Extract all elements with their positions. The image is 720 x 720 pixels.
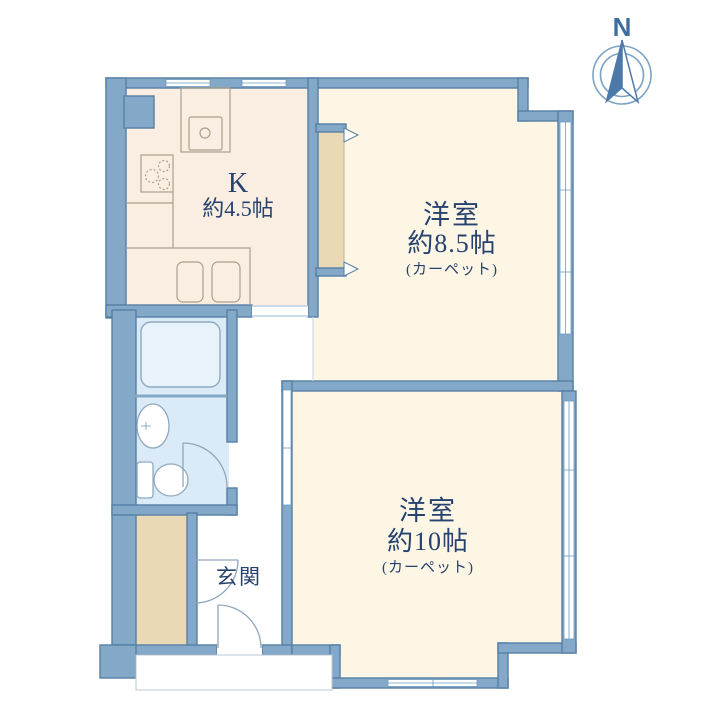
wall-bath-right-upper bbox=[227, 310, 237, 442]
wall-closet-right bbox=[187, 513, 197, 655]
wall-bottom-genkan-right bbox=[262, 645, 292, 655]
entrance-porch bbox=[136, 655, 332, 690]
kitchen-opening bbox=[252, 305, 308, 317]
compass-north-label: N bbox=[613, 12, 632, 42]
wall-closet1-stub-top bbox=[316, 124, 346, 132]
room1-note: (カーペット) bbox=[406, 262, 498, 278]
kitchen-size: 約4.5帖 bbox=[202, 196, 274, 221]
floorplan-canvas: N K 約4.5帖 洋室 約8.5帖 (カーペット) 洋室 約10帖 (カーペッ… bbox=[0, 0, 720, 720]
room1-size: 約8.5帖 bbox=[407, 229, 497, 258]
compass-icon: N bbox=[593, 12, 651, 104]
room1-name: 洋室 bbox=[423, 200, 481, 230]
bathtub-icon bbox=[141, 322, 220, 387]
wall-closet1-stub-bottom bbox=[316, 268, 346, 276]
wall-bath-bottom bbox=[112, 505, 237, 515]
floorplan-drawing: N K 約4.5帖 洋室 約8.5帖 (カーペット) 洋室 約10帖 (カーペッ… bbox=[0, 0, 720, 720]
wall-left-kitchen bbox=[106, 78, 126, 318]
wall-left-lower bbox=[112, 310, 136, 655]
entrance-closet bbox=[136, 513, 189, 647]
entrance-name: 玄関 bbox=[216, 565, 262, 589]
room2-note: (カーペット) bbox=[382, 560, 474, 576]
room2-name: 洋室 bbox=[399, 496, 457, 526]
toilet-tank-icon bbox=[137, 462, 153, 498]
entrance-door-gap bbox=[217, 645, 262, 655]
wall-room1-room2 bbox=[282, 381, 573, 391]
sliding-door-room2 bbox=[283, 390, 291, 505]
room1-closet bbox=[316, 130, 344, 272]
wall-pillar bbox=[124, 96, 154, 128]
wall-kitchen-room1 bbox=[308, 78, 318, 317]
wall-corner-block bbox=[100, 645, 136, 678]
room2-size: 約10帖 bbox=[387, 527, 469, 556]
kitchen-name: K bbox=[228, 168, 248, 199]
